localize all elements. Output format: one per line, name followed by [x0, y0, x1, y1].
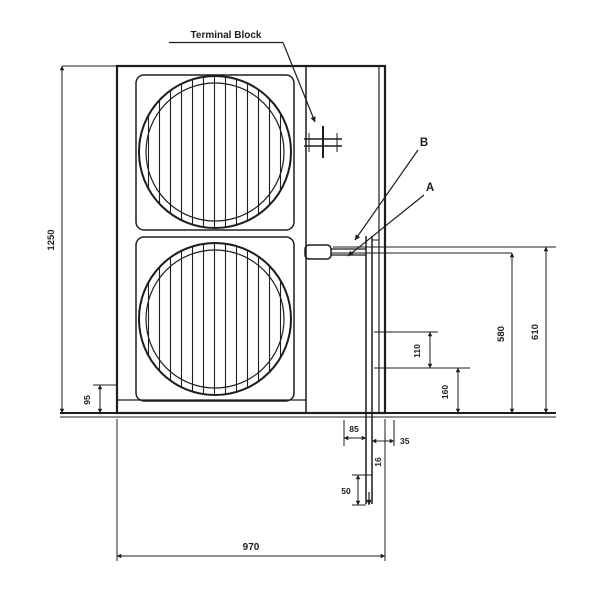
- valve-body: [305, 245, 331, 259]
- dim-pipe-upper: 110: [374, 332, 438, 368]
- dim-overall-width-value: 970: [243, 542, 260, 553]
- callout-b: B: [355, 137, 428, 240]
- dim-drain-left: 85: [344, 420, 366, 446]
- dim-drain-length: 50: [341, 475, 372, 505]
- callout-b-label: B: [420, 137, 428, 149]
- dim-drain-right: 35: [372, 420, 410, 446]
- fan-grille-top: [139, 76, 291, 228]
- front-view: [117, 66, 385, 413]
- dim-valve-b-value: 610: [530, 324, 541, 340]
- dim-base-height: 95: [82, 385, 117, 413]
- dim-pipe-lower-value: 160: [440, 385, 450, 399]
- dim-pipe-lower: 160: [374, 368, 470, 413]
- dim-drain-left-value: 85: [349, 424, 359, 434]
- dim-drain-dia-value: 16: [373, 457, 383, 467]
- dim-overall-height: 1250: [46, 66, 117, 413]
- dim-valve-a-height: 580: [331, 253, 512, 413]
- dim-base-height-value: 95: [82, 395, 92, 405]
- valve-pipe-assembly: [305, 236, 379, 505]
- callout-a-label: A: [426, 182, 434, 194]
- terminal-block-label: Terminal Block: [191, 30, 262, 41]
- ground-line: [60, 413, 556, 417]
- terminal-block-leader: [283, 43, 315, 123]
- dim-drain-right-value: 35: [400, 436, 410, 446]
- dim-overall-height-value: 1250: [46, 229, 57, 250]
- dim-valve-a-value: 580: [496, 326, 507, 342]
- callout-a: A: [348, 182, 434, 256]
- dim-drain-length-value: 50: [341, 486, 351, 496]
- outdoor-unit-dimension-drawing: Terminal Block B A 1250: [0, 0, 600, 600]
- dim-drain-dia: 16: [373, 457, 383, 467]
- dim-pipe-upper-value: 110: [412, 344, 422, 358]
- drawing-canvas: Terminal Block B A 1250: [0, 0, 600, 600]
- callout-b-leader: [355, 150, 418, 240]
- fan-grille-bottom: [139, 243, 291, 395]
